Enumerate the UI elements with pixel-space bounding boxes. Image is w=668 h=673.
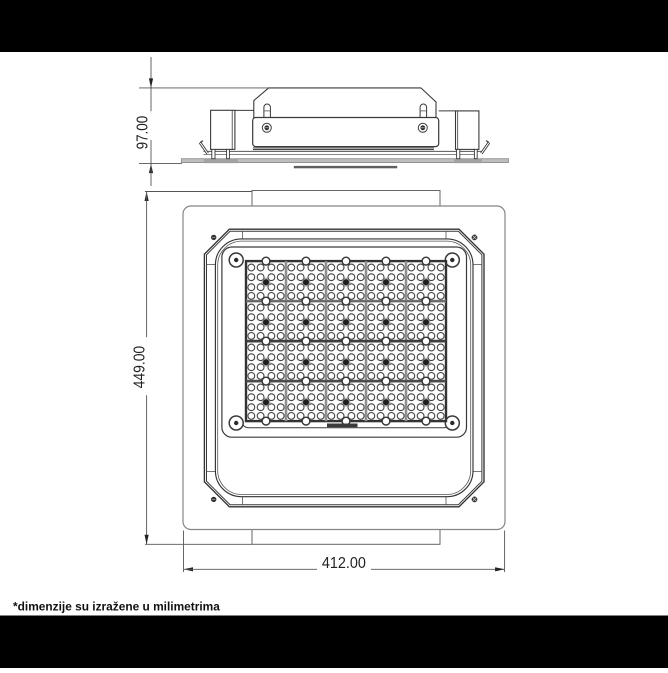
- svg-text:*dimenzije su izražene u milim: *dimenzije su izražene u milimetrima: [13, 600, 220, 614]
- svg-text:97.00: 97.00: [135, 116, 152, 150]
- svg-text:412.00: 412.00: [322, 554, 366, 572]
- svg-text:449.00: 449.00: [131, 346, 149, 389]
